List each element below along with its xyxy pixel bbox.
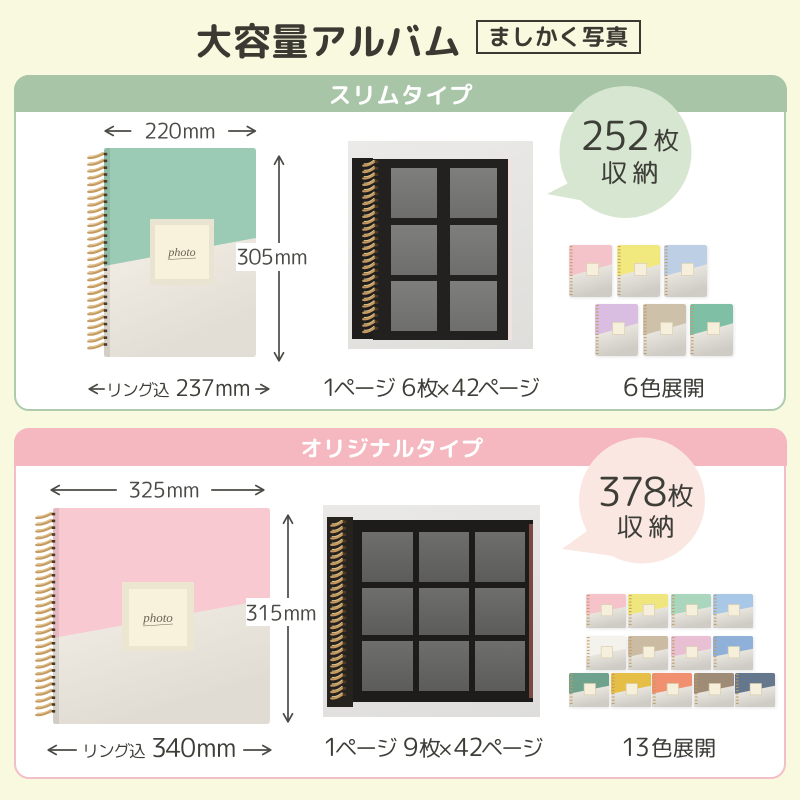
svg-text:photo: photo (167, 245, 195, 259)
svg-text:photo: photo (142, 610, 173, 625)
